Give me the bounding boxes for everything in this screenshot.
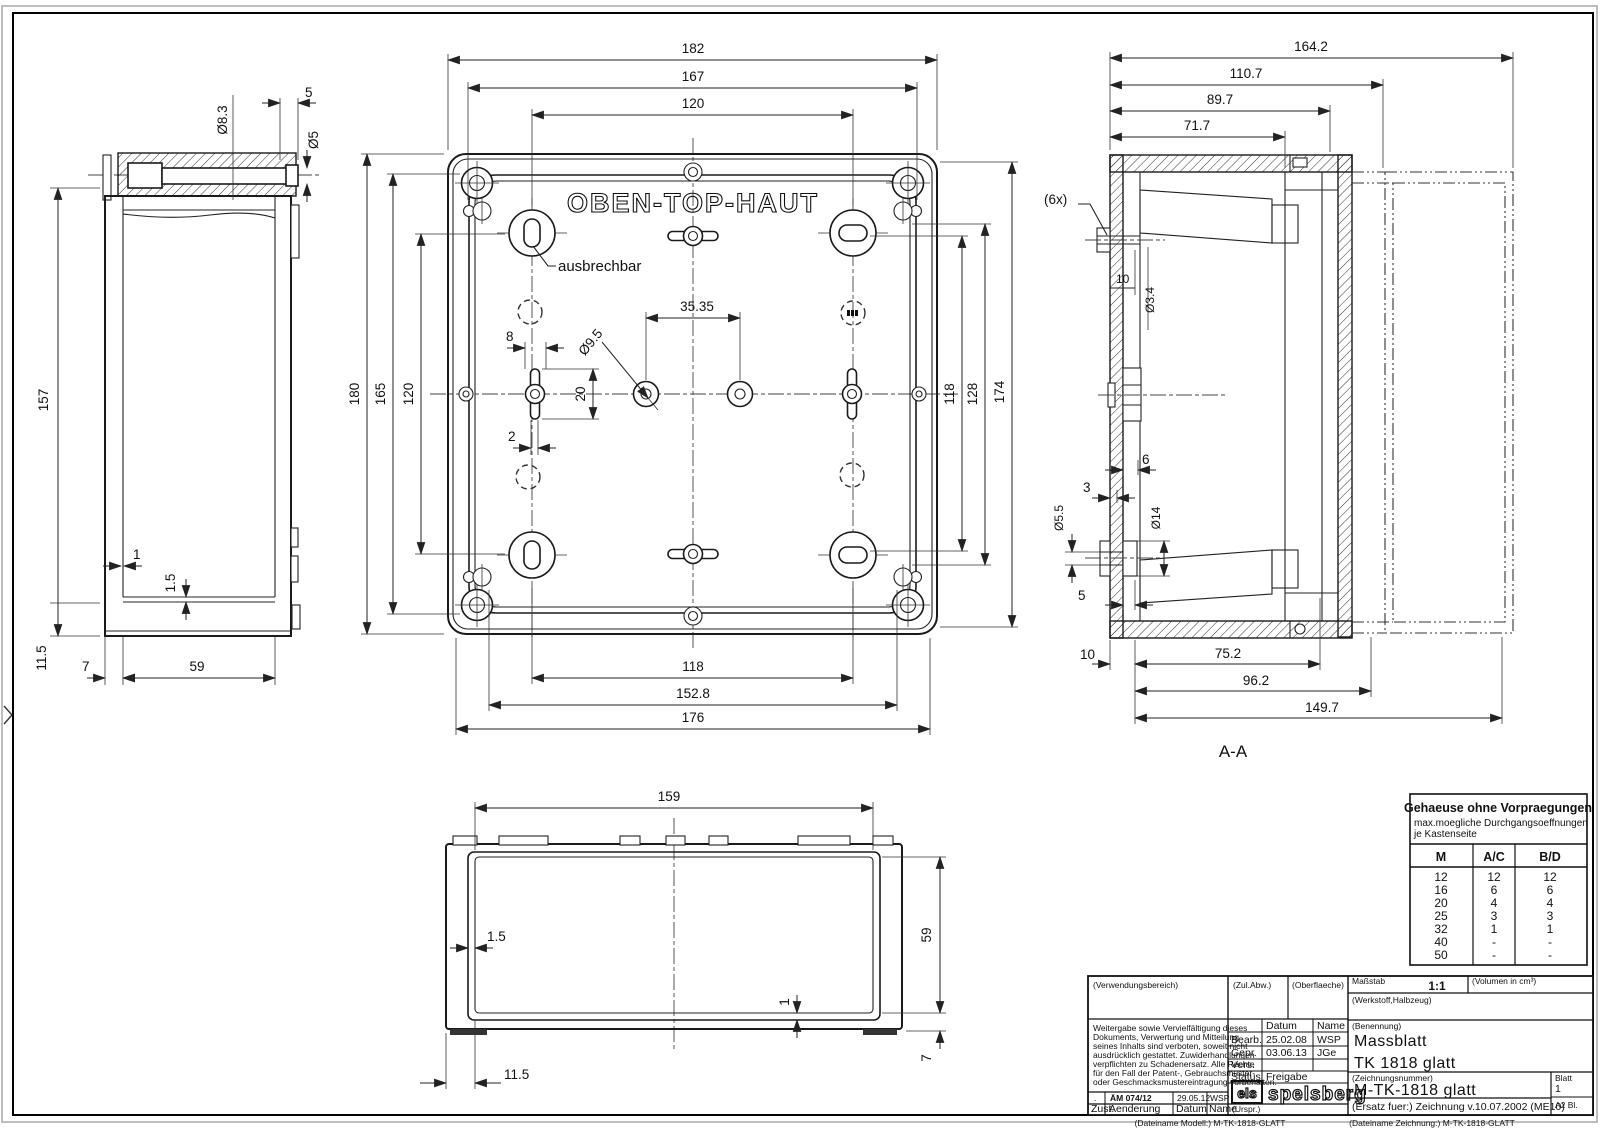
dim-11-5: 11.5 (34, 645, 49, 670)
verwendungsbereich-label: (Verwendungsbereich) (1093, 980, 1178, 990)
dim-7: 7 (82, 659, 90, 674)
col-m: M (1436, 850, 1446, 864)
dim-128: 128 (965, 383, 980, 406)
blatt-label: Blatt (1555, 1073, 1573, 1083)
gepr-label: Gepr. (1231, 1047, 1257, 1059)
dim-dia5-5: Ø5.5 (1052, 505, 1066, 531)
dim-152-8: 152.8 (676, 686, 710, 701)
rev-aem: ÄM 074/12 (1110, 1093, 1152, 1103)
svg-text:3: 3 (1547, 909, 1554, 923)
dim-165: 165 (373, 383, 388, 406)
dim-11-5-front: 11.5 (504, 1067, 529, 1082)
svg-text:1: 1 (1491, 922, 1498, 936)
svg-text:12: 12 (1487, 870, 1501, 884)
urspr-label: (Urspr.) (1232, 1104, 1261, 1114)
svg-text:3: 3 (1491, 909, 1498, 923)
logo-els: els (1237, 1085, 1257, 1101)
note-ausbrechbar: ausbrechbar (558, 258, 641, 275)
svg-text:20: 20 (1434, 896, 1448, 910)
side-view: Ø8.3 5 Ø5 157 11.5 1 1.5 7 59 (34, 85, 322, 685)
dim-1: 1 (133, 547, 141, 562)
zul-abw-label: (Zul.Abw.) (1233, 980, 1271, 990)
dim-120-left: 120 (401, 383, 416, 406)
rev-datum: 29.05.12 (1177, 1093, 1210, 1103)
svg-text:50: 50 (1434, 948, 1448, 962)
dim-167: 167 (682, 69, 705, 84)
dim-182: 182 (682, 41, 705, 56)
massstab-value: 1:1 (1428, 979, 1446, 993)
front-view: 159 1.5 1 59 7 11.5 (420, 789, 946, 1089)
svg-text:1: 1 (1547, 922, 1554, 936)
dim-7-front: 7 (919, 1054, 934, 1062)
dim-75-2: 75.2 (1215, 646, 1241, 661)
werkstoff-label: (Werkstoff,Halbzeug) (1352, 995, 1432, 1005)
massstab-label: Maßstab (1352, 976, 1385, 986)
dim-8: 8 (506, 329, 514, 344)
bearb-label: Bearb. (1231, 1034, 1262, 1046)
dim-164-2: 164.2 (1294, 39, 1328, 54)
dim-71-7: 71.7 (1184, 118, 1210, 133)
benennung-line2: TK 1818 glatt (1354, 1055, 1456, 1072)
phantom-lid (1352, 172, 1513, 633)
svg-text:-: - (1548, 935, 1552, 949)
knockout-table: Gehaeuse ohne Vorpraegungen max.moeglich… (1404, 794, 1592, 965)
gepr-datum: 03.06.13 (1266, 1047, 1307, 1059)
dim-59-front: 59 (919, 927, 934, 942)
benennung-label: (Benennung) (1352, 1021, 1401, 1031)
ersatz-label: (Ersatz fuer:) Zeichnung v.10.07.2002 (M… (1352, 1101, 1565, 1113)
svg-text:12: 12 (1543, 870, 1557, 884)
dim-118-right: 118 (942, 383, 957, 405)
svg-text:40: 40 (1434, 935, 1448, 949)
oberflaeche-label: (Oberflaeche) (1292, 980, 1344, 990)
dim-10-top: 10 (1116, 272, 1130, 286)
svg-text:12: 12 (1434, 870, 1448, 884)
svg-text:4: 4 (1547, 896, 1554, 910)
dim-149-7: 149.7 (1305, 700, 1339, 715)
blatt-value: 1 (1555, 1083, 1561, 1095)
dim-6: 6 (1142, 452, 1150, 467)
svg-text:-: - (1548, 948, 1552, 962)
status-value: Freigabe (1266, 1071, 1308, 1083)
benennung-line1: Massblatt (1354, 1033, 1427, 1050)
dim-1-5-front: 1.5 (487, 929, 506, 944)
dim-2: 2 (508, 429, 516, 444)
dim-174: 174 (992, 380, 1007, 403)
col-ac: A/C (1483, 850, 1505, 864)
name-col: Name (1317, 1020, 1345, 1032)
dim-dia9-5: Ø9.5 (575, 326, 605, 358)
datum-col: Datum (1266, 1020, 1297, 1032)
front-top-tabs (453, 836, 893, 845)
dateiname-modell: (Dateiname Modell:) M-TK-1818-GLATT (1135, 1118, 1286, 1128)
dim-180: 180 (347, 383, 362, 406)
rev-dot: . (1094, 1093, 1096, 1103)
dim-dia14: Ø14 (1149, 506, 1163, 529)
vers-label: Vers. (1231, 1059, 1255, 1071)
note-6x: (6x) (1044, 192, 1067, 207)
section-view: (6x) Ø3.4 10 6 3 Ø5.5 Ø14 5 (1044, 39, 1513, 761)
dim-35-35: 35.35 (680, 299, 714, 314)
dim-110-7: 110.7 (1230, 66, 1263, 81)
bearb-datum: 25.02.08 (1266, 1034, 1307, 1046)
dim-20: 20 (573, 386, 588, 401)
svg-text:6: 6 (1547, 883, 1554, 897)
top-view: OBEN-TOP-HAUT ausbrechbar 182 167 120 18… (347, 41, 1018, 735)
dim-5-top: 5 (305, 85, 313, 100)
embossed-top-label: OBEN-TOP-HAUT (567, 188, 819, 218)
dim-176: 176 (682, 710, 705, 725)
section-bottom-wall (1110, 621, 1352, 638)
svg-text:-: - (1492, 935, 1496, 949)
title-block: (Verwendungsbereich) Weitergabe sowie Ve… (1088, 976, 1593, 1128)
dim-89-7: 89.7 (1207, 92, 1233, 107)
section-top-wall (1110, 155, 1352, 172)
frame-center-mark (4, 706, 12, 724)
zeichnungsnummer: M-TK-1818 glatt (1354, 1082, 1476, 1099)
svg-text:32: 32 (1434, 922, 1448, 936)
knockout-table-subtitle2: je Kastenseite (1413, 829, 1477, 840)
front-foot-left (450, 1029, 487, 1035)
datum-label: Datum (1176, 1103, 1207, 1115)
col-bd: B/D (1539, 850, 1561, 864)
side-body (105, 196, 291, 636)
front-foot-right (863, 1029, 897, 1035)
rev-name: WSP (1210, 1093, 1230, 1103)
dim-dia5: Ø5 (306, 131, 321, 149)
gepr-name: JGe (1317, 1047, 1336, 1059)
svg-text:4: 4 (1491, 896, 1498, 910)
aenderung-label: Aenderung (1109, 1103, 1161, 1115)
knockout-table-title: Gehaeuse ohne Vorpraegungen (1404, 801, 1592, 815)
dim-dia8-3: Ø8.3 (215, 105, 230, 134)
dateiname-zeichnung: (Dateiname Zeichnung:) M-TK-1818-GLATT (1349, 1118, 1515, 1128)
dim-118-bottom: 118 (682, 659, 704, 674)
knockout-table-subtitle1: max.moegliche Durchgangsoeffnungen (1414, 818, 1588, 829)
dim-dia3-4: Ø3.4 (1143, 287, 1157, 313)
dim-1-5: 1.5 (163, 574, 178, 593)
dim-59: 59 (189, 659, 204, 674)
bearb-name: WSP (1317, 1034, 1341, 1046)
section-lid-wall (1338, 155, 1352, 637)
dim-159: 159 (658, 789, 681, 804)
dim-5: 5 (1078, 588, 1086, 603)
dim-120-top: 120 (682, 96, 705, 111)
dim-1-front: 1 (777, 998, 792, 1006)
svg-text:6: 6 (1491, 883, 1498, 897)
dashed-knockouts (516, 300, 865, 489)
volumen-label: (Volumen in cm³) (1472, 976, 1536, 986)
svg-text:25: 25 (1434, 909, 1448, 923)
dim-3: 3 (1083, 480, 1091, 495)
svg-text:16: 16 (1434, 883, 1448, 897)
dim-96-2: 96.2 (1243, 673, 1269, 688)
dim-10-bottom: 10 (1080, 647, 1095, 662)
drawing-sheet: Ø8.3 5 Ø5 157 11.5 1 1.5 7 59 (0, 0, 1600, 1132)
svg-text:-: - (1492, 948, 1496, 962)
dim-157: 157 (36, 389, 51, 412)
section-label: A-A (1219, 742, 1248, 761)
